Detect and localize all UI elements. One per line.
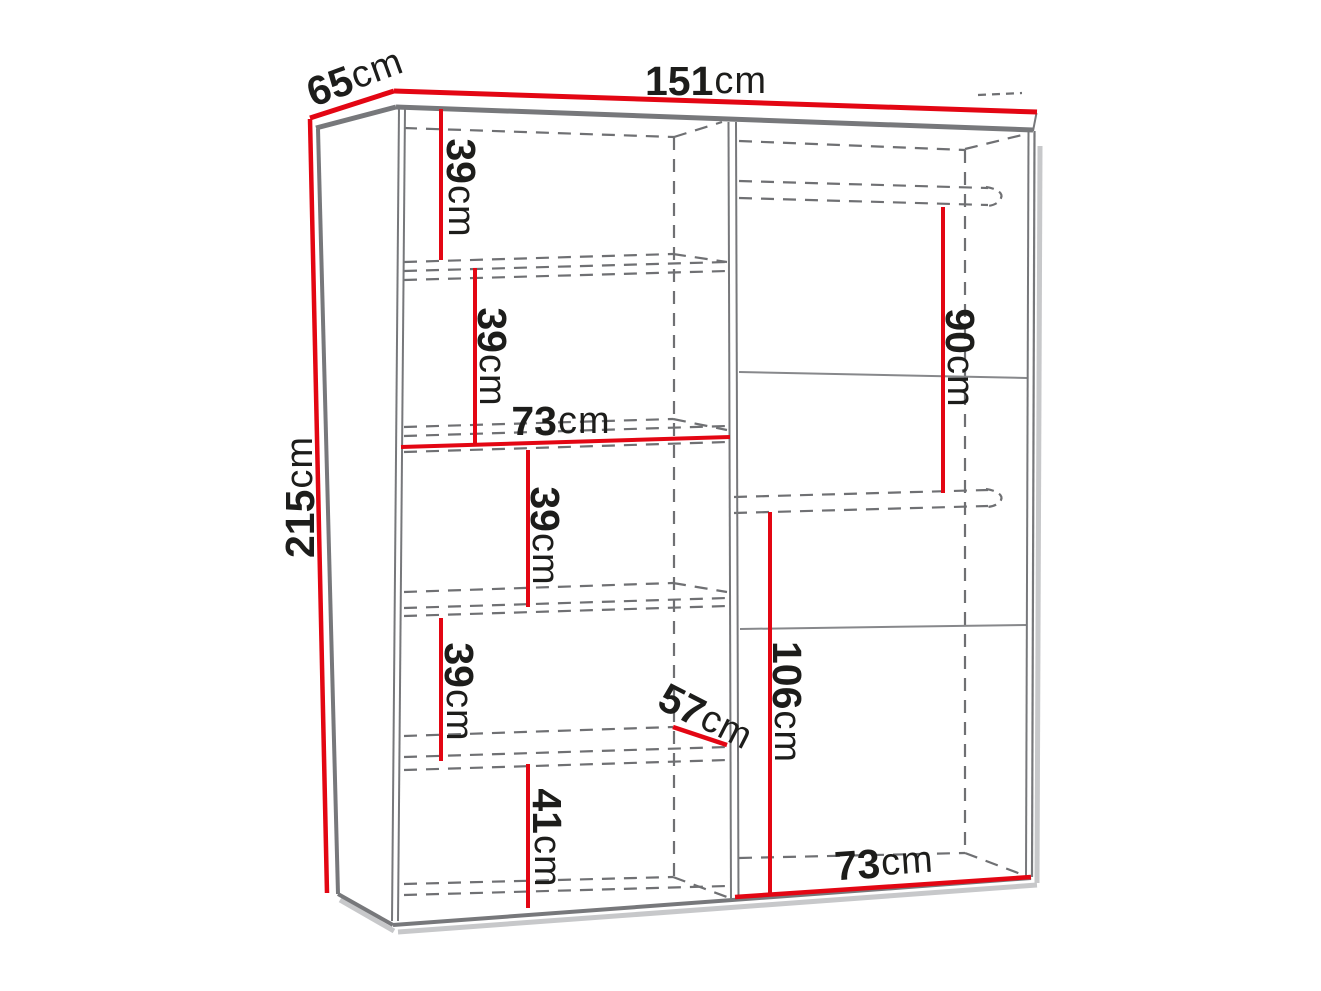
shelf-l1-diagonal xyxy=(673,254,727,262)
floor-corner-diagonal-right xyxy=(965,853,1026,876)
interior-dashed-lines xyxy=(404,93,1026,897)
shelf-r2-bottom xyxy=(734,506,988,513)
shelf-r1-end-curl xyxy=(986,187,1001,206)
shelf-l4-front-bottom xyxy=(404,760,727,770)
shelf-l3-diagonal xyxy=(673,583,727,592)
label-height-215: 215cm xyxy=(277,436,323,558)
shadow-right-side xyxy=(1037,146,1040,883)
shelf-l4-front-top xyxy=(404,747,727,757)
wardrobe-dimension-diagram: 151cm 65cm 215cm 39cm 39cm 73cm 39cm 39c… xyxy=(0,0,1321,991)
label-left-gap-1: 39cm xyxy=(438,138,484,237)
label-left-gap-5: 41cm xyxy=(524,788,570,887)
shelf-l1-front-top xyxy=(404,262,727,271)
label-left-gap-3: 39cm xyxy=(522,486,568,585)
diagram-canvas: 151cm 65cm 215cm 39cm 39cm 73cm 39cm 39c… xyxy=(0,0,1321,991)
bottom-left-diagonal-edge xyxy=(338,894,393,925)
right-front-edge-outer xyxy=(1032,131,1035,877)
shadow-bottom-left-diagonal xyxy=(340,900,394,931)
label-right-gap-90: 90cm xyxy=(937,308,983,407)
label-width-151: 151cm xyxy=(645,58,767,104)
ceiling-corner-diagonal-right xyxy=(965,134,1026,149)
dimension-labels: 151cm 65cm 215cm 39cm 39cm 73cm 39cm 39c… xyxy=(277,38,983,889)
shelf-l2-diagonal xyxy=(673,419,727,430)
hanging-rails xyxy=(739,372,1027,629)
shelf-r1-bottom xyxy=(739,198,988,205)
divider-front-edge-right xyxy=(736,122,739,901)
left-inner-edge-inner xyxy=(398,108,405,921)
shelf-l1-front-bottom xyxy=(404,271,727,280)
top-back-edge-hint xyxy=(978,93,1022,95)
shelf-r1-top xyxy=(739,181,988,188)
label-divider-depth-57: 57cm xyxy=(651,674,760,760)
divider-front-edge-left xyxy=(729,122,732,901)
shelf-r2-top xyxy=(734,490,988,497)
label-right-width-73: 73cm xyxy=(833,837,935,890)
hanging-rail-upper xyxy=(739,372,1027,378)
ceiling-divider-diagonal-left xyxy=(674,122,722,137)
top-slab-right-cap xyxy=(1033,113,1037,131)
label-left-gap-2: 39cm xyxy=(469,307,515,406)
label-right-gap-106: 106cm xyxy=(764,641,810,763)
shelf-l1-back xyxy=(404,254,673,262)
ceiling-back-edge-right xyxy=(739,141,965,150)
shelf-r2-end-curl xyxy=(986,489,1001,507)
cabinet-structure xyxy=(316,107,1037,925)
label-left-width-73: 73cm xyxy=(511,398,610,444)
left-inner-edge-outer xyxy=(392,108,399,921)
label-left-gap-4: 39cm xyxy=(436,642,482,741)
hanging-rail-lower xyxy=(740,625,1027,629)
right-front-edge-inner xyxy=(1026,132,1029,877)
ceiling-back-edge-left xyxy=(404,128,674,137)
